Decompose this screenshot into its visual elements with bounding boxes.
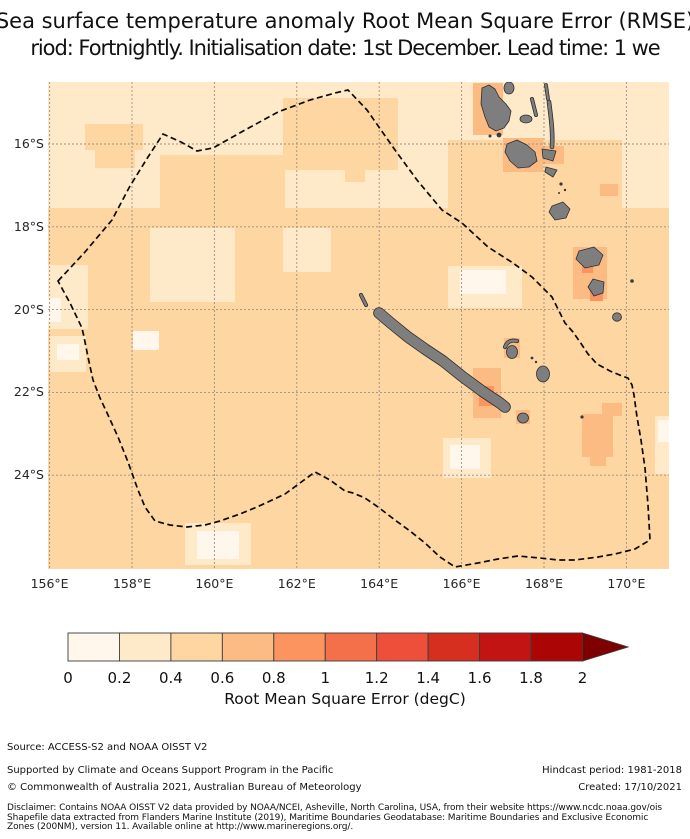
colorbar-segment — [428, 633, 479, 661]
colorbar-tick-label: 0 — [63, 669, 73, 687]
supported-by-text: Supported by Climate and Oceans Support … — [7, 765, 333, 776]
map-canvas — [48, 82, 669, 569]
islet-dot — [580, 415, 583, 418]
rmse-cell — [150, 228, 235, 302]
colorbar-tick-label: 0.6 — [210, 669, 234, 687]
lon-tick-label: 168°E — [514, 576, 574, 591]
lon-tick-label: 170°E — [596, 576, 656, 591]
rmse-cell — [57, 344, 79, 360]
lon-tick-label: 162°E — [267, 576, 327, 591]
island-shape — [518, 413, 529, 423]
rmse-cell — [450, 445, 480, 469]
colorbar-tick-label: 0.4 — [159, 669, 183, 687]
colorbar-segment — [531, 633, 582, 661]
rmse-cell — [85, 124, 143, 150]
islet-dot — [531, 357, 534, 360]
disclaimer-line1: Disclaimer: Contains NOAA OISST V2 data … — [7, 803, 690, 813]
rmse-cell — [133, 331, 159, 350]
rmse-cell — [95, 150, 135, 168]
colorbar-tick-label: 1.6 — [468, 669, 492, 687]
island-shape — [537, 366, 550, 382]
colorbar-segment — [222, 633, 273, 661]
copyright-text: © Commonwealth of Australia 2021, Austra… — [7, 782, 362, 793]
figure-title-line2: riod: Fortnightly. Initialisation date: … — [30, 36, 659, 60]
colorbar-segment — [480, 633, 531, 661]
islet-dot — [558, 192, 560, 194]
island-shape — [520, 115, 532, 123]
islet-dot — [497, 133, 502, 138]
lat-tick-label: 24°S — [4, 467, 44, 482]
lat-tick-label: 22°S — [4, 384, 44, 399]
disclaimer-line3: Zones (200NM), version 11. Available onl… — [7, 822, 690, 832]
rmse-cell — [590, 457, 606, 466]
colorbar-segment — [274, 633, 325, 661]
lon-tick-label: 158°E — [102, 576, 162, 591]
colorbar: 00.20.40.60.811.21.41.61.82 — [0, 620, 690, 690]
lon-tick-label: 160°E — [184, 576, 244, 591]
islet-dot — [559, 182, 562, 185]
rmse-cell — [283, 98, 398, 170]
islet-dot — [630, 279, 634, 283]
colorbar-tick-label: 0.2 — [108, 669, 132, 687]
figure-root: Sea surface temperature anomaly Root Mea… — [0, 0, 690, 839]
lat-tick-label: 20°S — [4, 302, 44, 317]
colorbar-tick-label: 0.8 — [262, 669, 286, 687]
colorbar-segment — [377, 633, 428, 661]
rmse-cell — [600, 184, 618, 196]
colorbar-extend-arrow — [583, 633, 629, 661]
lon-tick-label: 156°E — [20, 576, 80, 591]
rmse-cell — [345, 150, 365, 182]
island-shape — [613, 313, 622, 321]
figure-title-line1: Sea surface temperature anomaly Root Mea… — [0, 9, 690, 33]
rmse-cell — [460, 270, 506, 294]
colorbar-tick-label: 1.8 — [519, 669, 543, 687]
lat-tick-label: 16°S — [4, 136, 44, 151]
rmse-cell — [658, 420, 669, 442]
colorbar-segment — [171, 633, 222, 661]
island-shape — [504, 82, 514, 94]
created-date-text: Created: 17/10/2021 — [578, 782, 682, 793]
source-text: Source: ACCESS-S2 and NOAA OISST V2 — [7, 742, 207, 753]
colorbar-tick-label: 2 — [578, 669, 588, 687]
rmse-cell — [160, 155, 285, 213]
rmse-cell — [197, 531, 239, 559]
colorbar-tick-label: 1.2 — [365, 669, 389, 687]
hindcast-period-text: Hindcast period: 1981-2018 — [542, 765, 682, 776]
lat-tick-label: 18°S — [4, 219, 44, 234]
islet-dot — [489, 135, 492, 138]
disclaimer-line2: Shapefile data extracted from Flanders M… — [7, 813, 690, 823]
rmse-cell — [283, 228, 331, 272]
islet-dot — [535, 361, 537, 363]
colorbar-segment — [325, 633, 376, 661]
islet-dot — [564, 189, 566, 191]
colorbar-tick-label: 1.4 — [416, 669, 440, 687]
island-shape — [507, 346, 518, 359]
colorbar-segment — [119, 633, 170, 661]
lon-tick-label: 164°E — [349, 576, 409, 591]
colorbar-segment — [68, 633, 119, 661]
rmse-cell — [582, 414, 613, 457]
colorbar-label: Root Mean Square Error (degC) — [0, 690, 690, 708]
lon-tick-label: 166°E — [432, 576, 492, 591]
colorbar-tick-label: 1 — [320, 669, 330, 687]
